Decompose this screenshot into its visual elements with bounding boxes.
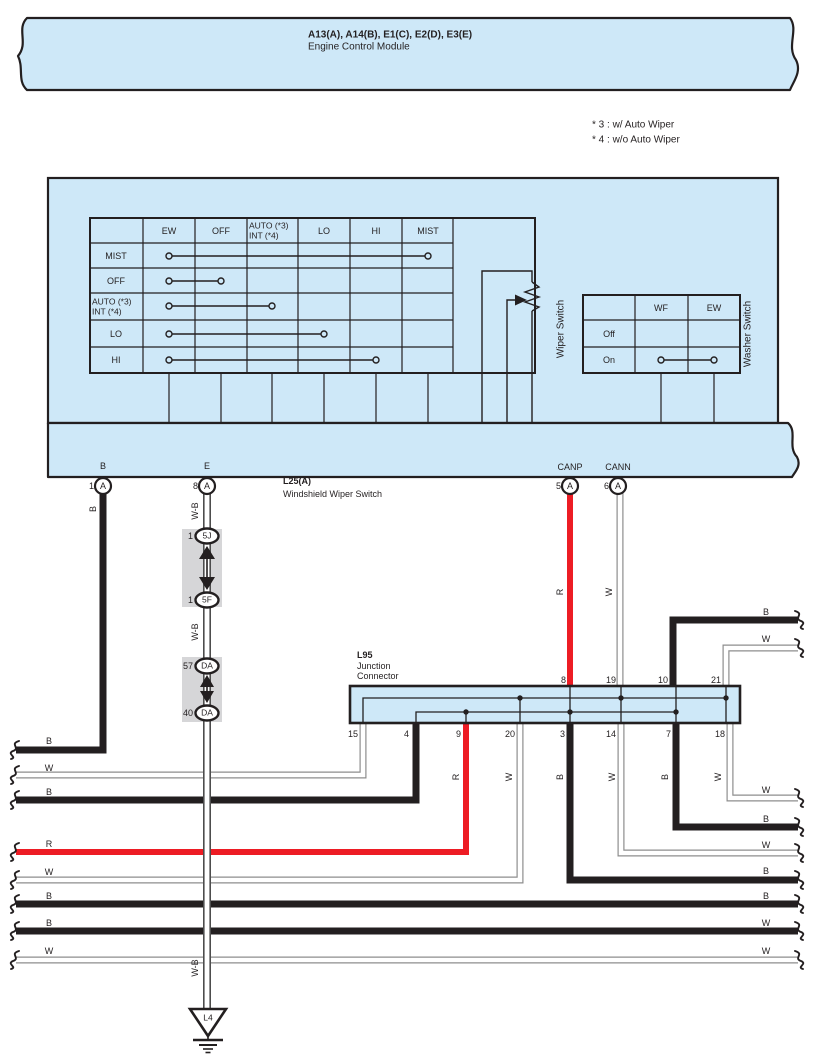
l95-desc2: Connector	[357, 671, 399, 681]
wire-label-wb-3: W-B	[190, 959, 200, 976]
l25-pin-e-label: E	[204, 461, 210, 471]
inline-5j-code: 5J	[203, 531, 212, 541]
wire-label-left-6: B	[46, 918, 52, 928]
wire-label-left-7: W	[45, 946, 54, 956]
wire-label-left-4: W	[45, 867, 54, 877]
inline-5f-code: 5F	[202, 595, 212, 605]
wire-label-pin18-w: W	[713, 773, 723, 782]
washer-col-wf: WF	[654, 303, 668, 313]
wire-label-b-vert: B	[88, 506, 98, 512]
wire-label-cann-w: W	[604, 588, 614, 597]
junction-connector-l95	[350, 686, 740, 723]
l25-code: L25(A)	[283, 476, 311, 486]
l25-conn-b: A	[100, 481, 106, 491]
ecm-title: A13(A), A14(B), E1(C), E2(D), E3(E)	[308, 30, 472, 41]
wire-label-left-2: B	[46, 787, 52, 797]
inline-da1-code: DA	[201, 661, 213, 671]
wire-label-pin9-r: R	[451, 774, 461, 781]
inline-da1-num: 57	[183, 661, 193, 671]
inline-5j-num: 1	[188, 531, 193, 541]
wire-label-pin20-w: W	[504, 773, 514, 782]
washer-switch-name: Washer Switch	[743, 301, 754, 367]
wiper-switch-name: Wiper Switch	[556, 300, 567, 358]
wiper-row-hi: HI	[112, 355, 121, 365]
l25-pin-b-label: B	[100, 461, 106, 471]
wiper-switch-box	[48, 178, 778, 423]
inline-5f-num: 1	[188, 595, 193, 605]
wire-label-left-1: W	[45, 763, 54, 773]
l25-desc: Windshield Wiper Switch	[283, 489, 382, 499]
wire-label-right-w14: W	[762, 840, 771, 850]
wiper-row-auto: AUTO (*3)INT (*4)	[92, 298, 132, 317]
wiper-switch-box-band	[48, 423, 799, 477]
wire-label-left-3: R	[46, 839, 53, 849]
ground-code: L4	[203, 1013, 212, 1023]
wiring-diagram-page: A13(A), A14(B), E1(C), E2(D), E3(E) Engi…	[0, 0, 817, 1063]
wire-w-pin14	[621, 722, 798, 853]
wire-label-right-w21: W	[762, 634, 771, 644]
white-wires	[16, 492, 798, 960]
wiper-col-auto: AUTO (*3)INT (*4)	[249, 222, 289, 241]
l25-pin-cann-num: 6	[604, 481, 609, 491]
l25-pin-canp-label: CANP	[557, 462, 582, 472]
wire-b-pin10	[673, 620, 798, 687]
l95-bot-pin-9: 9	[456, 729, 461, 739]
wire-w-pin21	[726, 648, 798, 687]
l25-conn-e: A	[204, 481, 210, 491]
inline-da2-num: 40	[183, 708, 193, 718]
l25-pin-e-num: 8	[193, 481, 198, 491]
wire-r-pin9	[16, 722, 466, 852]
l25-pin-cann-label: CANN	[605, 462, 631, 472]
l95-bot-pin-20: 20	[505, 729, 515, 739]
l95-top-pin-19: 19	[606, 675, 616, 685]
l25-conn-cann: A	[615, 481, 621, 491]
wire-label-pin7-b: B	[660, 774, 670, 780]
wire-b-pin1	[16, 492, 103, 750]
l95-bot-pin-18: 18	[715, 729, 725, 739]
washer-row-on: On	[603, 355, 615, 365]
ecm-subtitle: Engine Control Module	[308, 42, 410, 53]
wire-label-right-w18: W	[762, 785, 771, 795]
wire-label-right-b2: W	[762, 918, 771, 928]
l95-bot-pin-15: 15	[348, 729, 358, 739]
wiper-row-off: OFF	[107, 276, 125, 286]
washer-col-ew: EW	[707, 303, 722, 313]
wiper-col-off: OFF	[212, 226, 230, 236]
l25-conn-canp: A	[567, 481, 573, 491]
wiper-col-hi: HI	[372, 226, 381, 236]
wire-label-canp-r: R	[555, 589, 565, 596]
note-line-2: * 4 : w/o Auto Wiper	[592, 135, 680, 146]
wire-label-pin14-w: W	[607, 773, 617, 782]
l95-bot-pin-7: 7	[666, 729, 671, 739]
wire-label-right-b10: B	[763, 607, 769, 617]
wire-label-wb-1: W-B	[190, 502, 200, 519]
wiper-col-ew: EW	[162, 226, 177, 236]
wire-label-right-b1: B	[763, 891, 769, 901]
wiper-col-lo: LO	[318, 226, 330, 236]
wiper-col-mist: MIST	[417, 226, 439, 236]
wiper-row-mist: MIST	[105, 251, 127, 261]
wire-label-pin3-b: B	[555, 774, 565, 780]
l95-top-pin-8: 8	[561, 675, 566, 685]
l25-pin-b-num: 1	[89, 481, 94, 491]
torn-edge-marks	[11, 611, 804, 969]
l95-bot-pin-14: 14	[606, 729, 616, 739]
wire-label-left-5: B	[46, 891, 52, 901]
l95-bot-pin-4: 4	[404, 729, 409, 739]
l95-bot-pin-3: 3	[560, 729, 565, 739]
diagram-linework	[0, 0, 817, 1063]
wire-label-right-w: W	[762, 946, 771, 956]
l95-desc1: Junction	[357, 661, 391, 671]
l25-pin-canp-num: 5	[556, 481, 561, 491]
l95-top-pin-10: 10	[658, 675, 668, 685]
l95-top-pin-21: 21	[711, 675, 721, 685]
wire-label-wb-2: W-B	[190, 623, 200, 640]
wiper-row-lo: LO	[110, 329, 122, 339]
washer-row-off: Off	[603, 329, 615, 339]
wire-label-right-b7: B	[763, 814, 769, 824]
l95-code: L95	[357, 650, 373, 660]
note-line-1: * 3 : w/ Auto Wiper	[592, 120, 674, 131]
wire-label-left-0: B	[46, 736, 52, 746]
wire-b-pin7	[676, 722, 798, 827]
wire-label-right-b3: B	[763, 866, 769, 876]
inline-da2-code: DA	[201, 708, 213, 718]
